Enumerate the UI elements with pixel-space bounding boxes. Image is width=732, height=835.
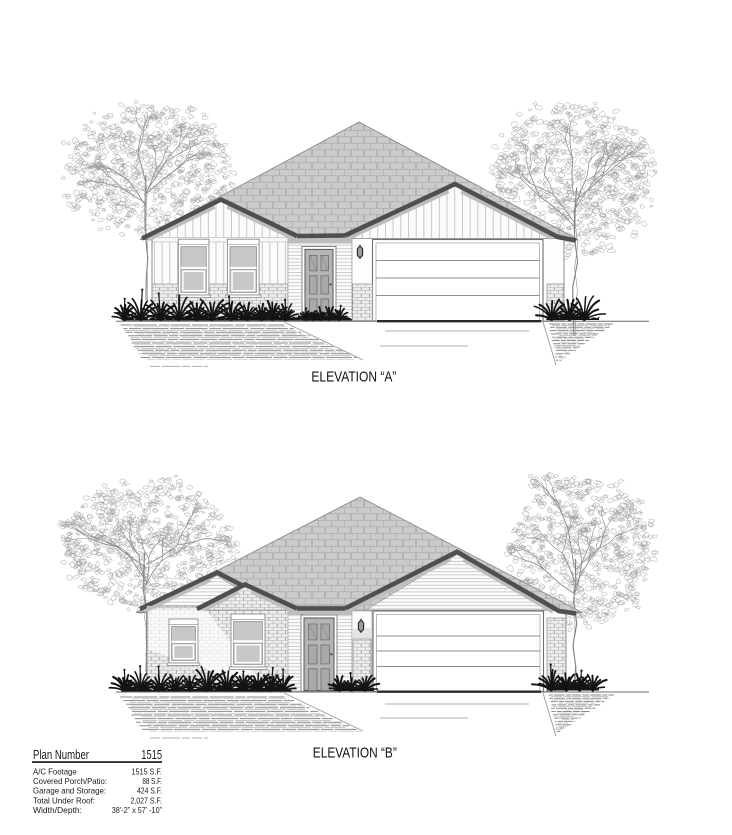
svg-text:ELEVATION “A”: ELEVATION “A” bbox=[311, 370, 396, 386]
svg-text:1515 S.F.: 1515 S.F. bbox=[132, 767, 163, 777]
svg-text:Width/Depth:: Width/Depth: bbox=[33, 805, 82, 815]
svg-text:1515: 1515 bbox=[141, 747, 162, 762]
svg-text:424 S.F.: 424 S.F. bbox=[137, 786, 162, 796]
svg-text:Total Under Roof:: Total Under Roof: bbox=[33, 795, 95, 805]
svg-text:88 S.F.: 88 S.F. bbox=[142, 776, 162, 786]
svg-text:38’-2” x 57’ -10”: 38’-2” x 57’ -10” bbox=[112, 805, 162, 815]
svg-text:Garage and Storage:: Garage and Storage: bbox=[33, 786, 106, 796]
svg-text:A/C Footage: A/C Footage bbox=[33, 767, 77, 777]
svg-text:ELEVATION “B”: ELEVATION “B” bbox=[313, 746, 397, 762]
svg-text:Covered Porch/Patio:: Covered Porch/Patio: bbox=[33, 776, 107, 786]
svg-text:2,027 S.F.: 2,027 S.F. bbox=[130, 795, 162, 805]
svg-text:Plan Number: Plan Number bbox=[33, 747, 90, 762]
